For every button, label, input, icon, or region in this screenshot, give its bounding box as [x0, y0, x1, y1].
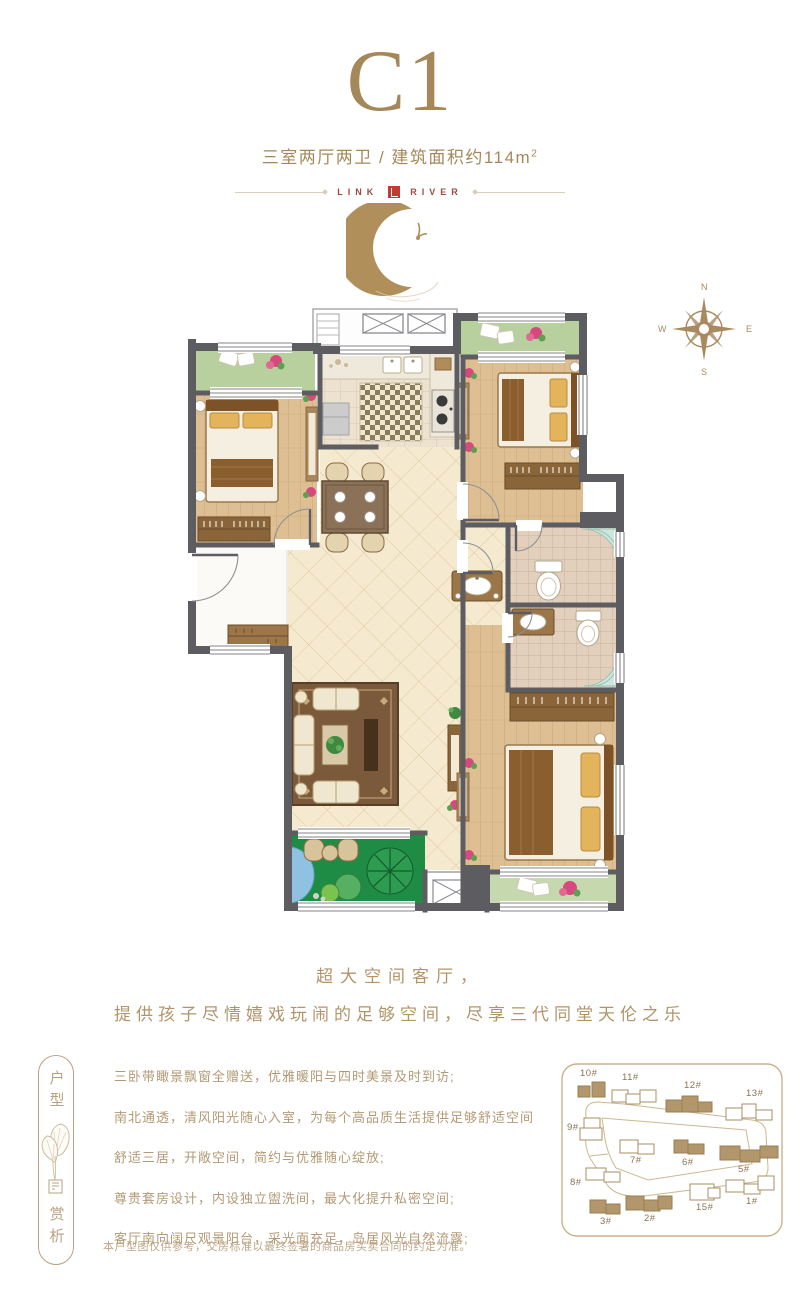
ginkgo-leaves-icon	[39, 1118, 73, 1202]
building-label: 12#	[684, 1080, 701, 1091]
hall-vanity	[452, 571, 502, 601]
feature-item: 舒适三居，开敞空间，简约与优雅随心绽放;	[114, 1147, 544, 1166]
feature-item: 南北通透，清风阳光随心入室，为每个高品质生活提供足够舒适空间	[114, 1107, 544, 1126]
site-plan: 10# 11# 12# 13# 9# 7# 6# 5# 8# 3# 2# 15#…	[556, 1058, 788, 1242]
building-label: 10#	[580, 1068, 597, 1079]
building-label: 6#	[682, 1157, 694, 1168]
subtitle-text: 三室两厅两卫 / 建筑面积约114m	[262, 148, 531, 167]
compass-west-label: W	[658, 324, 667, 334]
floorplan-poster-page: C1 三室两厅两卫 / 建筑面积约114m2 LINK RIVER	[0, 0, 800, 1300]
logo-line-left	[235, 192, 327, 193]
compass-rose: N S W E	[652, 282, 756, 378]
moon-decoration-icon	[346, 203, 462, 308]
disclaimer-text: 本户型图仅供参考，交房标准以最终签署的商品房买卖合同的约定为准。	[103, 1238, 471, 1254]
logo-seal-icon	[388, 186, 400, 198]
compass-south-label: S	[701, 367, 707, 377]
sidebar-label-top: 户型	[46, 1070, 67, 1114]
slogan-line1: 超大空间客厅，	[0, 962, 800, 987]
building-label: 3#	[600, 1216, 612, 1227]
slogan-line2: 提供孩子尽情嬉戏玩闹的足够空间，尽享三代同堂天伦之乐	[0, 1000, 800, 1025]
building-label: 1#	[746, 1196, 758, 1207]
logo-text-right: RIVER	[410, 187, 463, 197]
building-label: 13#	[746, 1088, 763, 1099]
logo-line-right	[473, 192, 565, 193]
sidebar-label-bottom: 赏析	[46, 1206, 67, 1250]
feature-item: 尊贵套房设计，内设独立盥洗间，最大化提升私密空间;	[114, 1188, 544, 1207]
feature-item: 三卧带瞰景飘窗全赠送，优雅暖阳与四时美景及时到访;	[114, 1066, 544, 1085]
brand-logo: LINK RIVER	[0, 186, 800, 198]
plan-subtitle: 三室两厅两卫 / 建筑面积约114m2	[0, 143, 800, 168]
floor-plan	[180, 295, 650, 940]
floor-plan-svg	[180, 295, 650, 940]
sidebar-capsule: 户型 赏析	[38, 1055, 74, 1265]
building-label: 5#	[738, 1164, 750, 1175]
building-label: 9#	[567, 1122, 579, 1133]
slogan: 超大空间客厅， 提供孩子尽情嬉戏玩闹的足够空间，尽享三代同堂天伦之乐	[0, 962, 800, 1025]
subtitle-superscript: 2	[531, 148, 538, 159]
building-label: 15#	[696, 1202, 713, 1213]
building-label: 2#	[644, 1213, 656, 1224]
compass-north-label: N	[701, 282, 708, 292]
logo-text-left: LINK	[337, 187, 378, 197]
compass-east-label: E	[746, 324, 752, 334]
building-label: 7#	[630, 1155, 642, 1166]
building-label: 11#	[622, 1072, 639, 1083]
building-label: 8#	[570, 1177, 582, 1188]
shared-corridor	[313, 309, 457, 350]
page-title: C1	[0, 38, 800, 126]
